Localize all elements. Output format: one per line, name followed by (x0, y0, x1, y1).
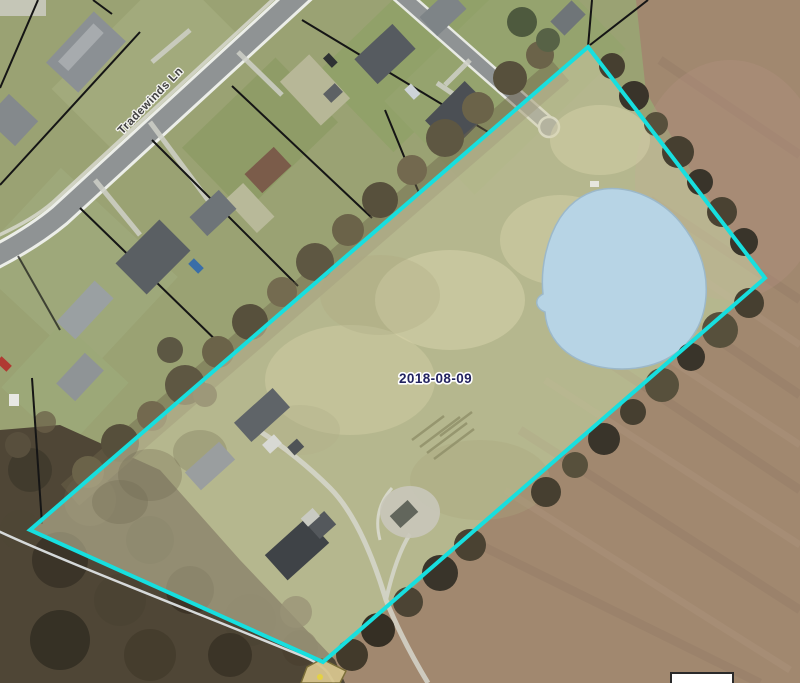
cutoff-label-box (671, 673, 733, 683)
tan-parcel-dot (317, 674, 323, 680)
imagery-date-label: 2018-08-09 (399, 371, 472, 386)
aerial-map: 2018-08-09 Tradewinds Ln (0, 0, 800, 683)
map-viewport[interactable]: 2018-08-09 Tradewinds Ln (0, 0, 800, 683)
